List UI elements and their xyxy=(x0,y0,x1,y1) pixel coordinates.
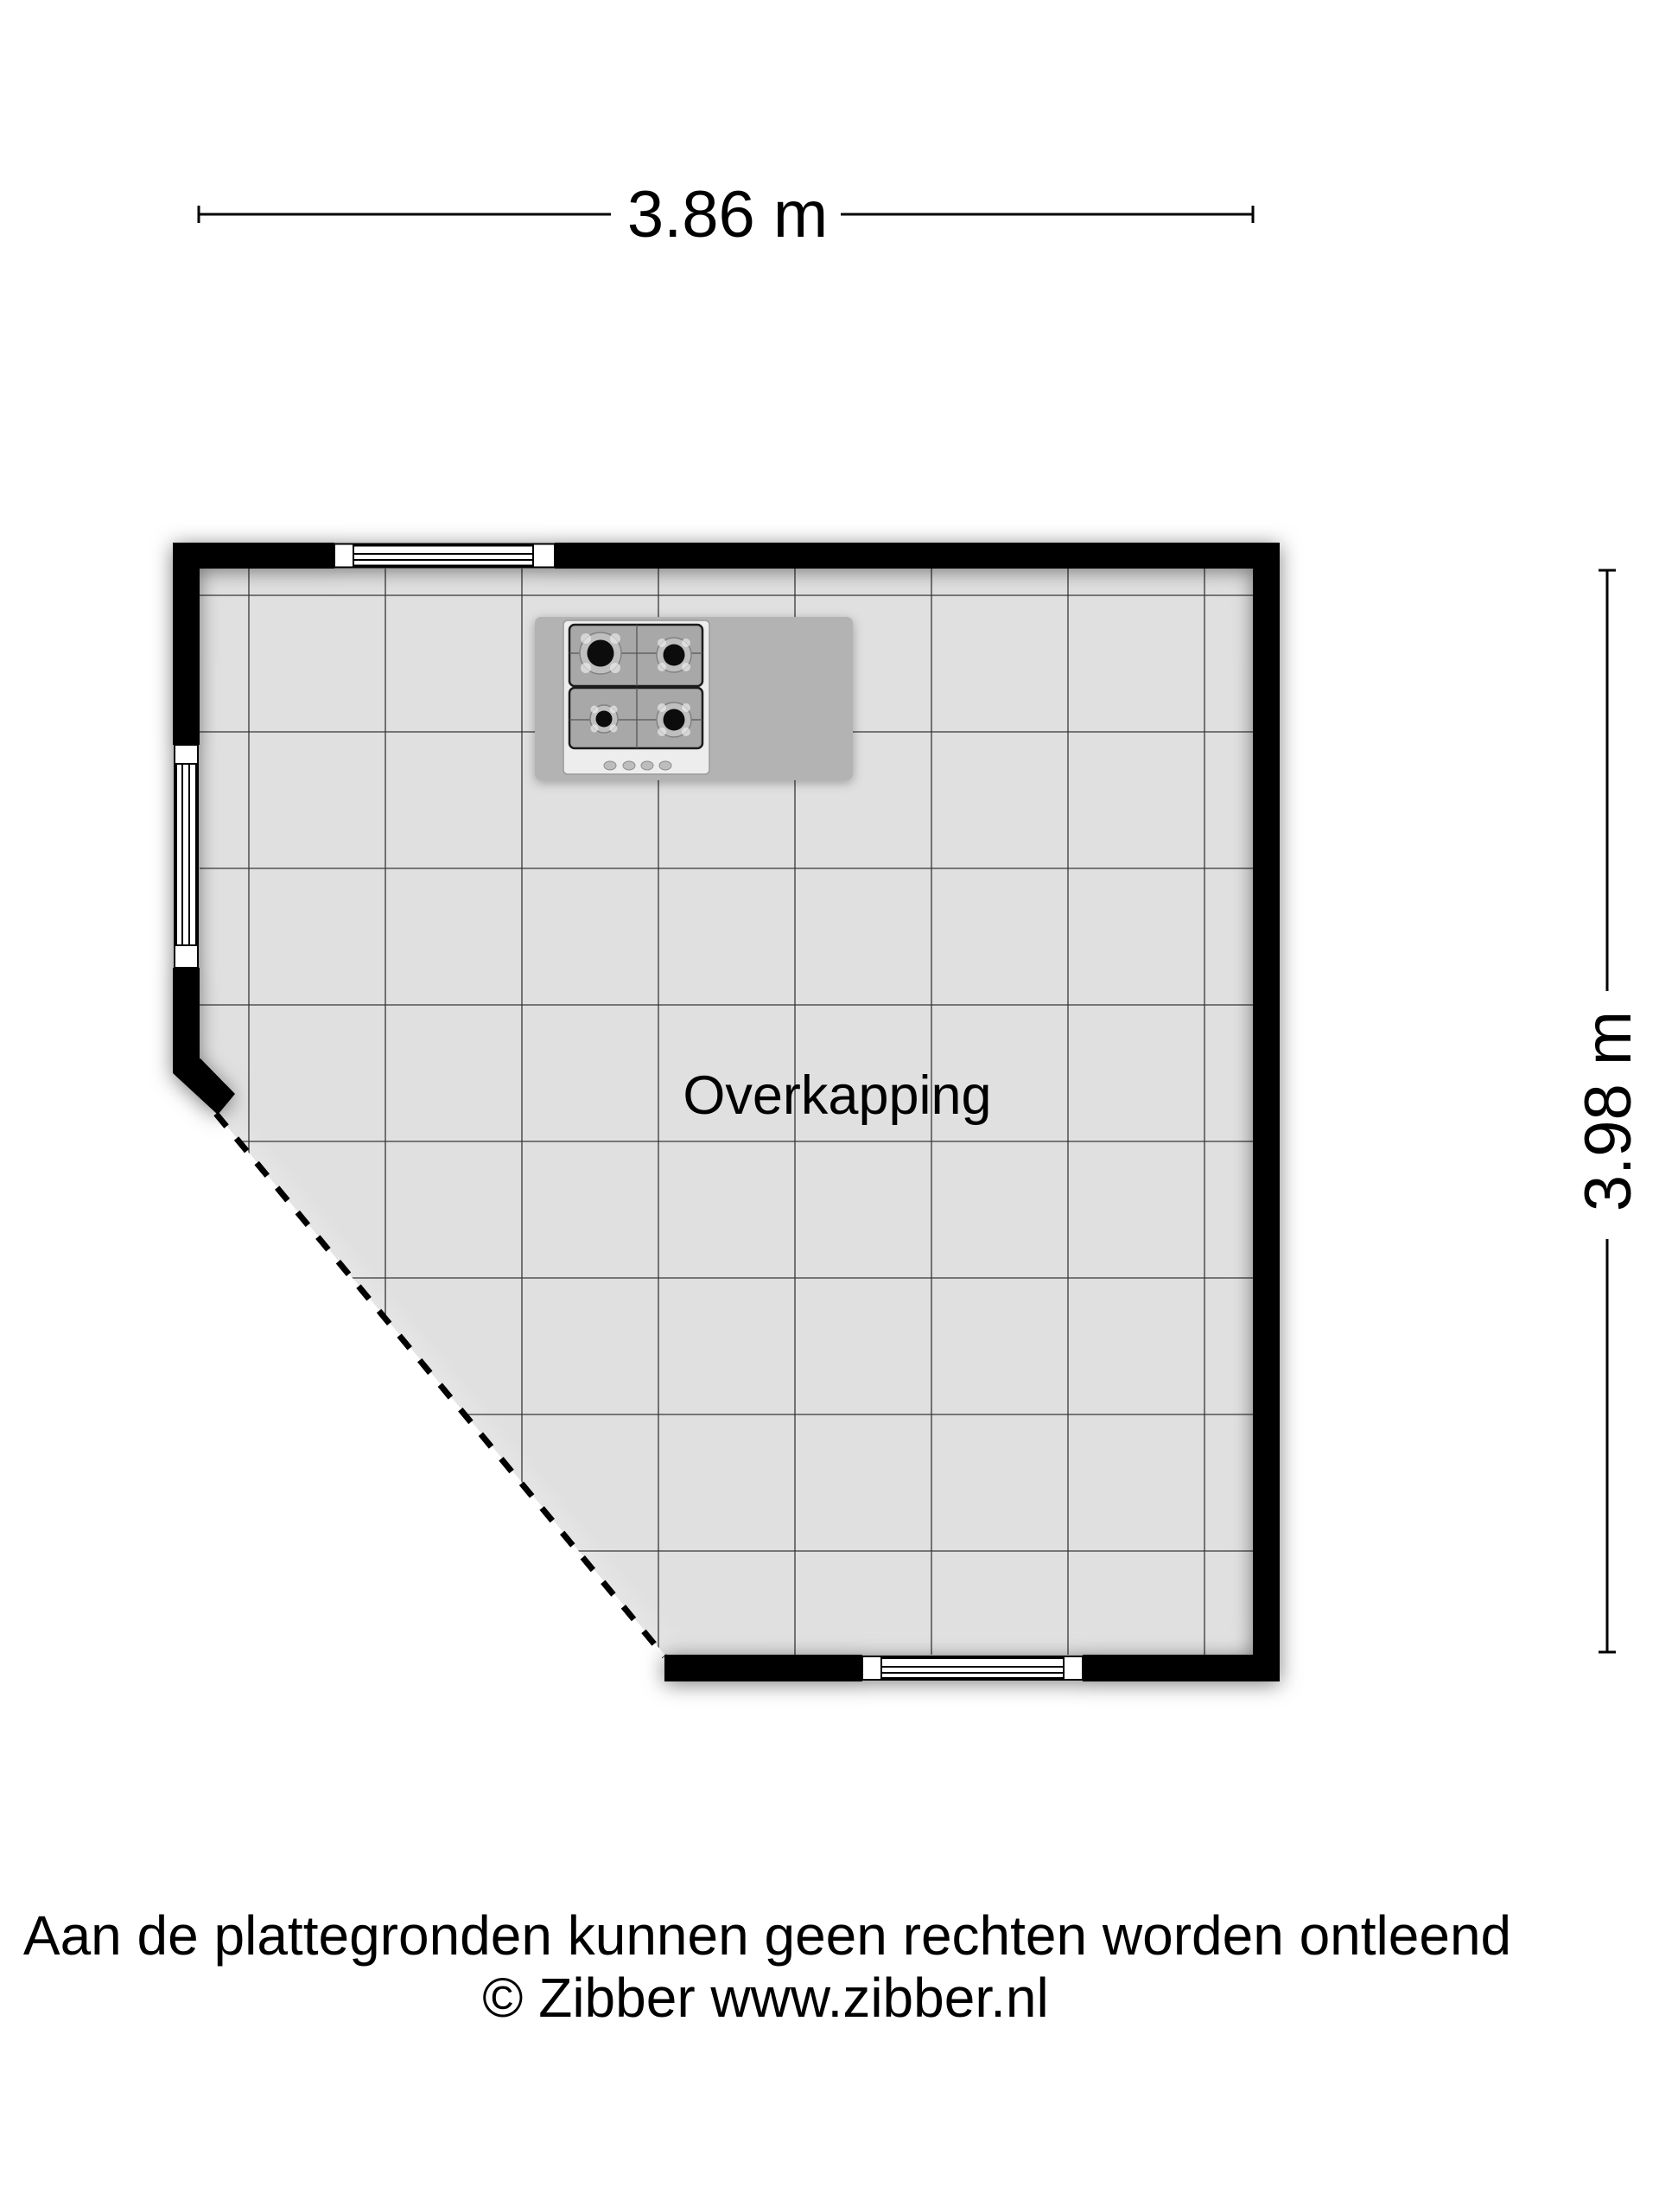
svg-text:3.86 m: 3.86 m xyxy=(627,178,828,251)
svg-text:© Zibber www.zibber.nl: © Zibber www.zibber.nl xyxy=(482,1967,1048,2029)
svg-text:3.98 m: 3.98 m xyxy=(1572,1011,1645,1211)
svg-text:Overkapping: Overkapping xyxy=(683,1065,991,1126)
svg-text:Aan de plattegronden kunnen ge: Aan de plattegronden kunnen geen rechten… xyxy=(23,1904,1511,1967)
